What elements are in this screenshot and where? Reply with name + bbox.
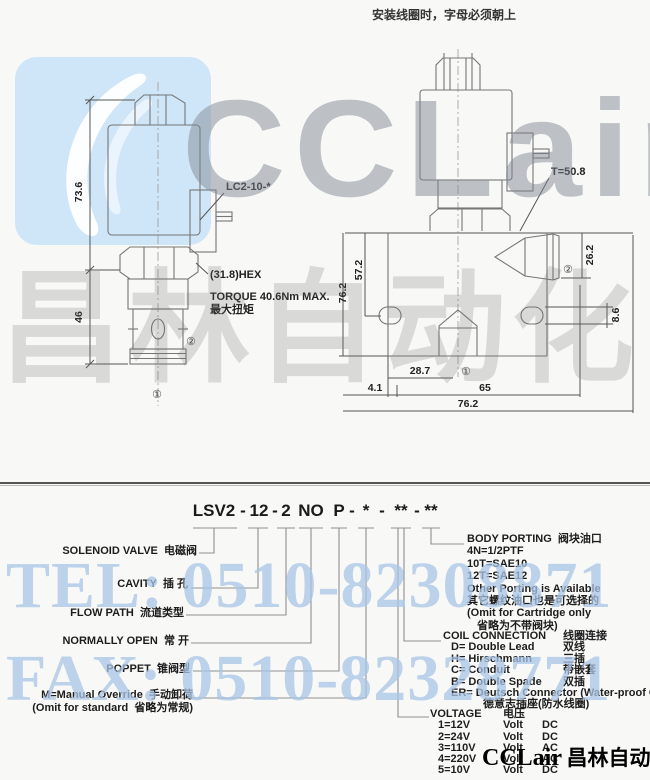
dim-26-2: 26.2 (584, 245, 596, 266)
code-token: P (333, 501, 344, 521)
left-valve-drawing: 73.6 46 LC2-10-* (31.8)HEX TORQUE 40.6Nm… (40, 50, 330, 445)
body-porting-title-en: BODY PORTING (467, 533, 552, 545)
coil-option: H= Hirschmann (451, 653, 532, 665)
code-token: ** (424, 501, 437, 521)
coil-option-cn: 德意志插座(防水线圈) (483, 698, 589, 710)
voltage-option: 5=10V (438, 764, 470, 776)
callout-voltage: VOLTAGE 电压 1=12V Volt DC 2=24V Volt DC 3… (430, 709, 482, 777)
dim-65: 65 (479, 382, 491, 394)
callout-cn: 手动卸荷 (149, 689, 193, 701)
coil-option-cn: 带嵌套 (563, 665, 596, 676)
dim-4-1: 4.1 (368, 382, 383, 394)
dim-76-2-vertical: 76.2 (337, 283, 349, 304)
code-token: 2 (281, 501, 290, 521)
valve-outline (345, 53, 633, 356)
callout-normally-open: NORMALLY OPEN 常 开 (40, 635, 189, 648)
callout-cn: 锥阀型 (157, 663, 190, 675)
callout-en: NORMALLY OPEN (62, 635, 157, 647)
callout-en: POPPET (106, 663, 151, 675)
code-token: LSV2 (193, 501, 236, 521)
footer-brand-latin: CCLair (482, 745, 562, 771)
coil-option: D= Double Lead (451, 641, 534, 653)
footer-brand: CCLair 昌林自动化 (482, 742, 650, 772)
body-porting-line: 12T=SAE12 (467, 570, 602, 582)
code-token: - (414, 501, 420, 521)
dim-46: 46 (73, 311, 85, 323)
callout-poppet: POPPET 锥阀型 (40, 663, 190, 676)
dim-73-6: 73.6 (73, 182, 85, 203)
torque-label-en: TORQUE 40.6Nm MAX. (210, 291, 330, 303)
hex-size-label: (31.8)HEX (210, 269, 262, 281)
callout-en: SOLENOID VALVE (62, 545, 158, 557)
footer-brand-cn: 昌林自动化 (566, 747, 650, 770)
code-token: - (379, 501, 385, 521)
voltage-option: 1=12V (438, 719, 470, 731)
callout-manual-override: M=Manual Override 手动卸荷 (Omit for standar… (18, 689, 193, 715)
callout-cn: 常 开 (164, 635, 189, 647)
datasheet-page: CCLair 昌林自动化 TEL: 0510-82308871 FAX: 051… (0, 0, 650, 780)
code-token: NO (298, 501, 324, 521)
install-note: 安装线圈时，字母必须朝上 (372, 6, 516, 23)
callout-coil-connection: COIL CONNECTION 线圈连接 D= Double Lead 双线 H… (443, 631, 650, 711)
code-token: ** (394, 501, 407, 521)
coil-model-label: LC2-10-* (226, 181, 271, 193)
valve-outline (108, 95, 232, 364)
body-porting-title-cn: 阀块油口 (558, 533, 602, 545)
coil-option: C= Conduit (451, 664, 510, 676)
dim-28-7: 28.7 (410, 365, 431, 377)
voltage-option: 2=24V (438, 731, 470, 743)
dimension-lines (339, 178, 633, 413)
code-token: - (272, 501, 278, 521)
callout-cn: 电磁阀 (164, 545, 197, 557)
callout-cn: 流道类型 (140, 607, 184, 619)
dim-8-6: 8.6 (610, 308, 622, 323)
dim-57-2: 57.2 (353, 260, 365, 281)
t-dimension-label: T=50.8 (551, 166, 586, 178)
callout-cavity: CAVITY 插 孔 (40, 578, 188, 591)
port-1-marker: ① (152, 388, 162, 401)
dim-76-2-horizontal: 76.2 (458, 398, 479, 410)
callout-en: CAVITY (117, 578, 157, 590)
torque-label-cn: 最大扭矩 (210, 302, 254, 316)
code-token: * (363, 501, 370, 521)
voltage-current: DC (542, 720, 558, 731)
callout-body-porting: BODY PORTING 阀块油口 4N=1/2PTF 10T=SAE10 12… (467, 533, 602, 632)
voltage-option: 3=110V (438, 742, 476, 754)
body-porting-line: (Omit for Cartridge only (467, 607, 602, 619)
callout-solenoid-valve: SOLENOID VALVE 电磁阀 (40, 545, 197, 558)
code-token: 12 (250, 501, 269, 521)
port-2-marker: ② (563, 263, 573, 276)
coil-option: B= Double Spade (451, 676, 542, 688)
body-porting-line: 10T=SAE10 (467, 558, 602, 570)
body-porting-line: Other Porting is Available (467, 583, 602, 595)
body-porting-line: 其它螺纹油口也是可选择的 (467, 595, 602, 607)
voltage-option: 4=220V (438, 753, 476, 765)
callout-flow-path: FLOW PATH 流道类型 (40, 607, 184, 620)
voltage-title-en: VOLTAGE (430, 708, 482, 720)
callout-en2: (Omit for standard (32, 702, 128, 714)
code-token: - (349, 501, 355, 521)
code-token: - (240, 501, 246, 521)
voltage-unit: Volt (503, 720, 523, 731)
callout-en: M=Manual Override (41, 689, 143, 701)
callout-cn2: 省略为常规) (134, 702, 193, 714)
dimension-lines (85, 96, 224, 368)
port-1-marker: ① (461, 365, 471, 378)
coil-connection-title-en: COIL CONNECTION (443, 630, 546, 642)
right-valve-drawing: T=50.8 76.2 57.2 26.2 8.6 28.7 ① 4.1 65 … (335, 45, 650, 420)
port-2-marker: ② (186, 335, 196, 348)
callout-en: FLOW PATH (70, 607, 134, 619)
body-porting-line: 4N=1/2PTF (467, 545, 602, 557)
callout-cn: 插 孔 (163, 578, 188, 590)
model-code: LSV2 - 12 - 2 NO P - * - ** - ** (0, 501, 650, 523)
